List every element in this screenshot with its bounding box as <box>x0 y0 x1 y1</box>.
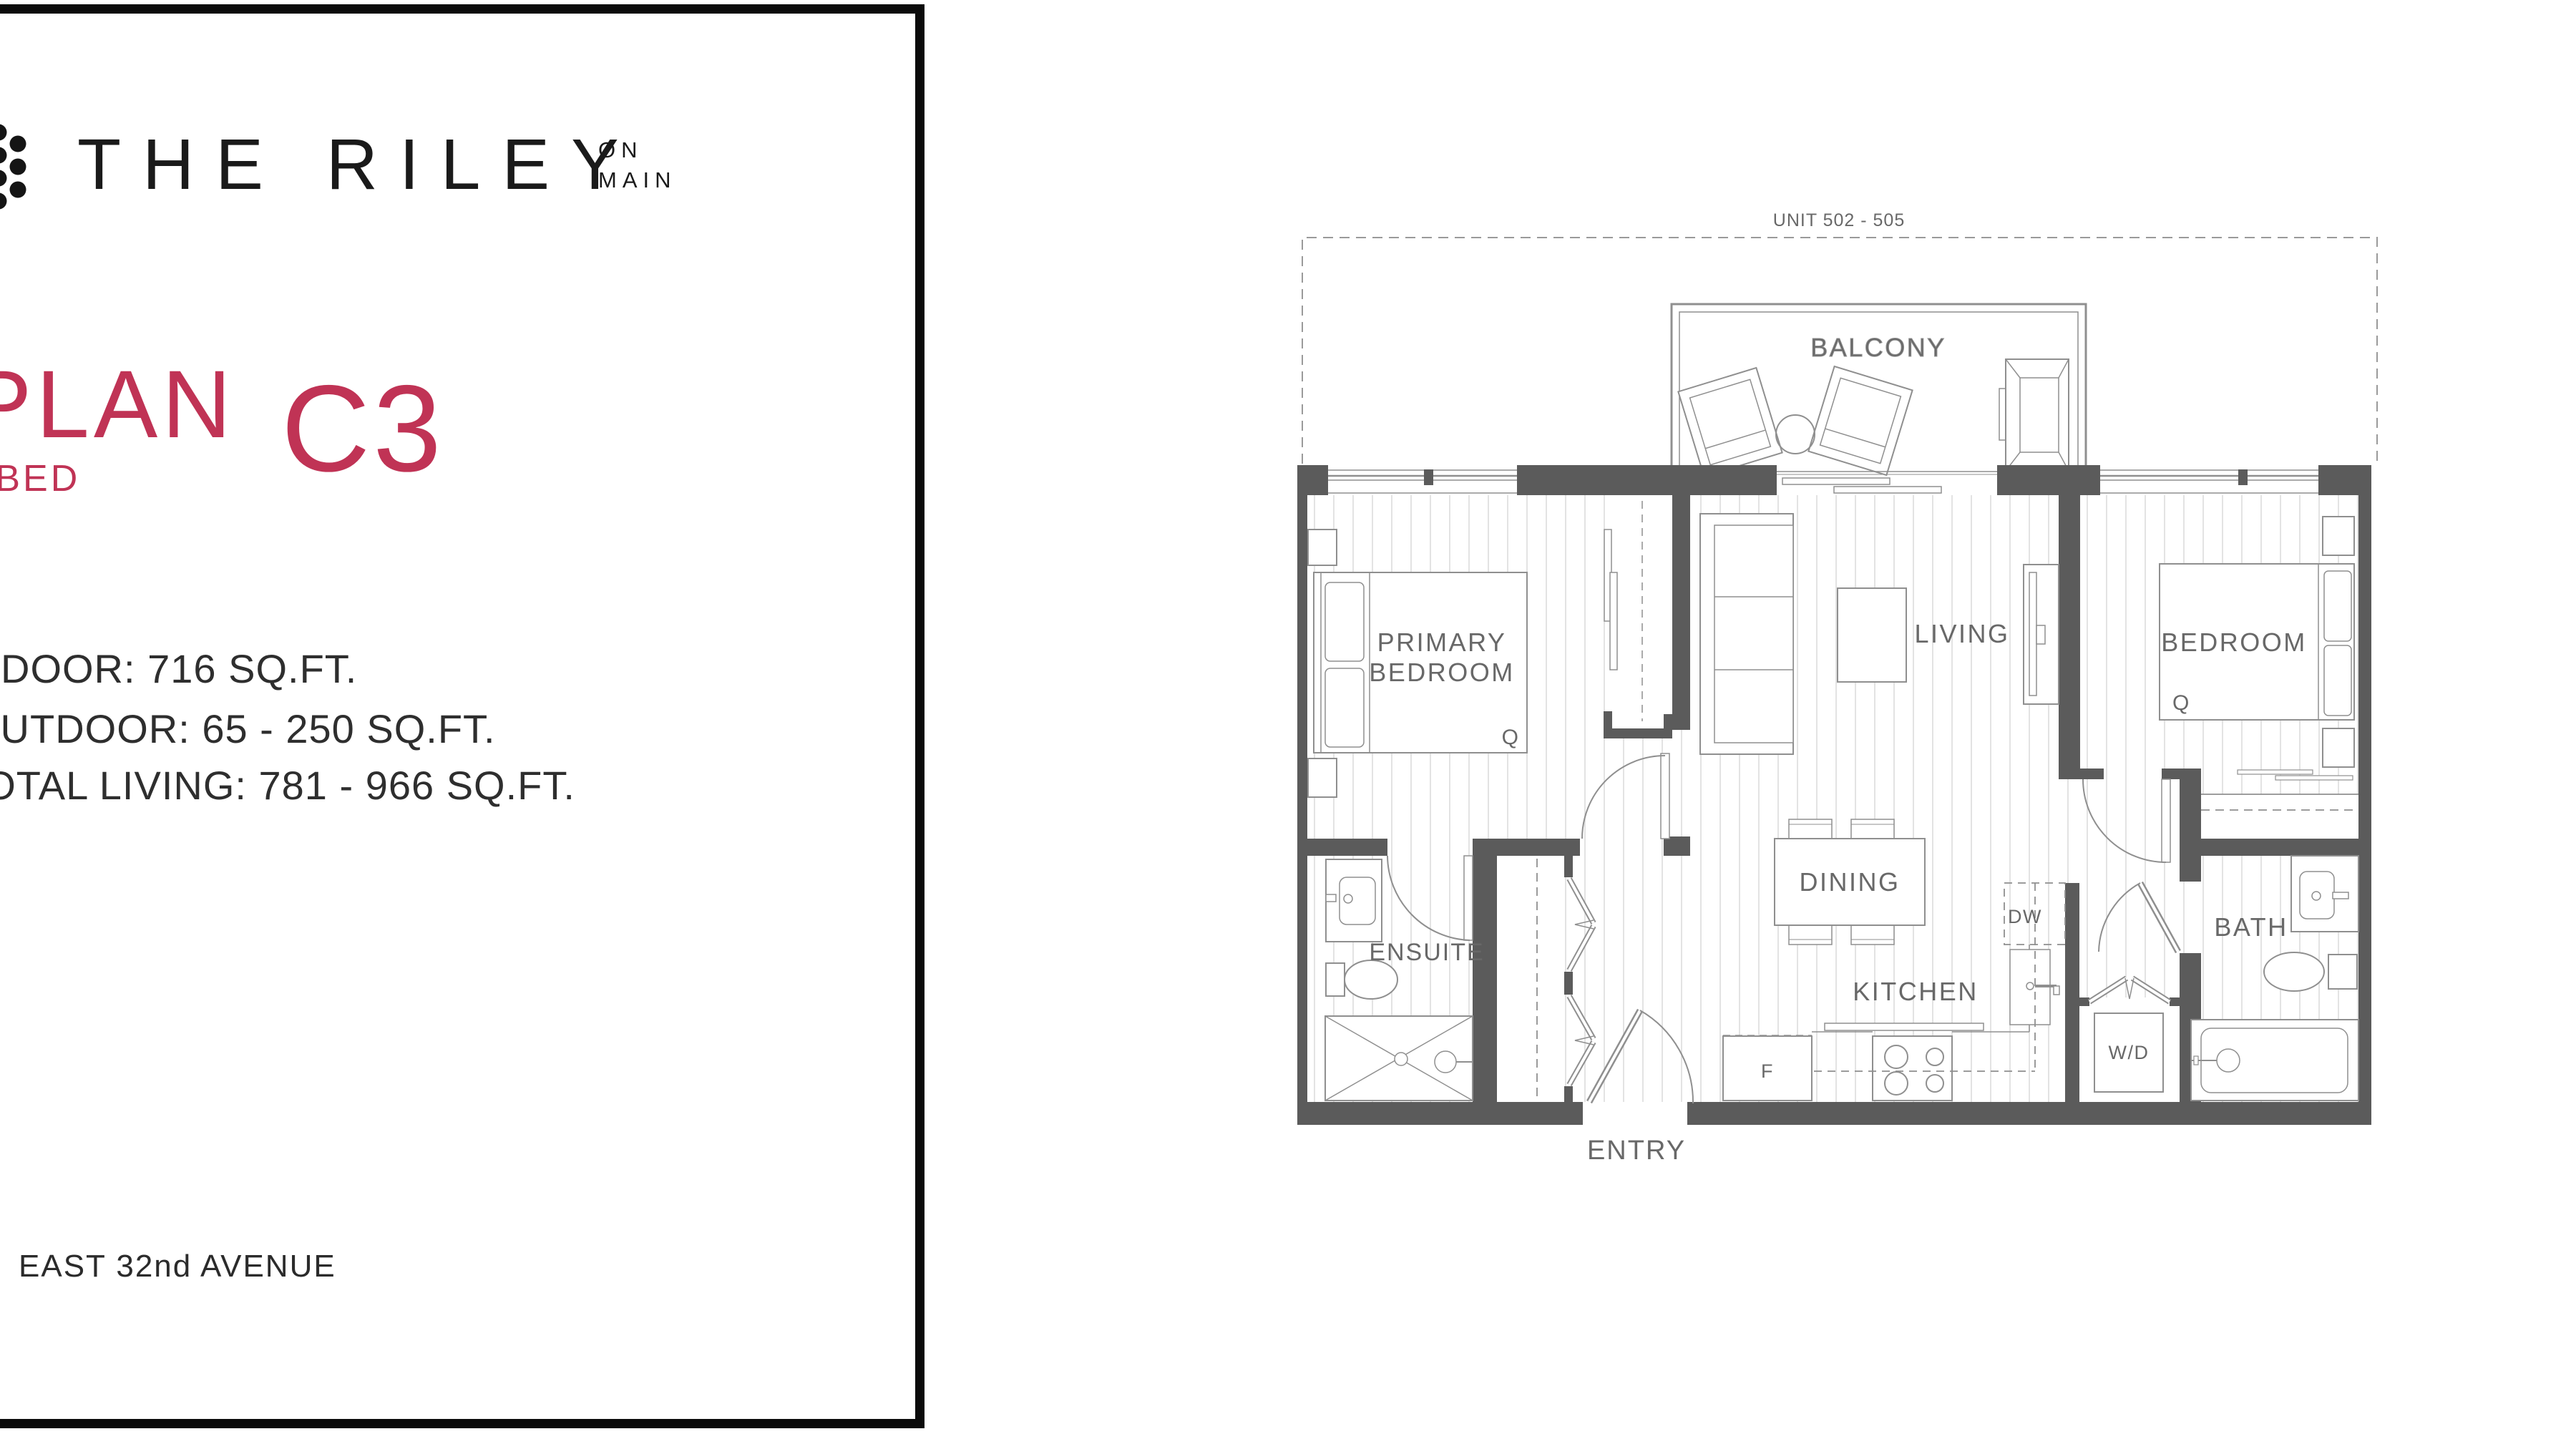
coffee-table <box>1838 588 1906 682</box>
primary-bedroom-label-1: PRIMARY <box>1377 628 1507 657</box>
brochure-page: THE RILEY ON MAIN PLAN C3 2 BED INDOOR: … <box>0 0 2576 1449</box>
dw-label: DW <box>2008 906 2042 927</box>
ensuite-toilet <box>1326 960 1397 999</box>
balcony-label: BALCONY <box>1810 333 1946 362</box>
bath-toilet <box>2264 952 2357 991</box>
sofa <box>1700 514 1793 754</box>
windows <box>1328 469 2318 493</box>
window-bedroom <box>2100 469 2318 493</box>
living-label: LIVING <box>1914 619 2009 648</box>
queen-label-primary: Q <box>1502 726 1518 749</box>
shelf <box>2275 776 2353 780</box>
stove <box>1873 1036 1952 1101</box>
nightstand <box>2323 728 2354 767</box>
queen-label-bedroom2: Q <box>2172 691 2189 715</box>
bath-label: BATH <box>2214 912 2288 942</box>
nightstand <box>1308 758 1337 797</box>
kitchen-label: KITCHEN <box>1853 977 1979 1006</box>
ensuite-label: ENSUITE <box>1369 939 1484 966</box>
primary-bedroom-label-2: BEDROOM <box>1369 658 1515 687</box>
shelf <box>2238 770 2313 774</box>
fridge-label: F <box>1761 1060 1774 1082</box>
bath-vanity <box>2291 856 2358 932</box>
tv-unit <box>2024 565 2059 704</box>
floor-plan: UNIT 502 - 505 <box>0 0 2576 1449</box>
wd-label: W/D <box>2109 1042 2150 1063</box>
nightstand <box>2323 517 2354 555</box>
ensuite-vanity <box>1326 859 1382 942</box>
nightstand <box>1308 530 1337 565</box>
shower <box>1325 1016 1473 1101</box>
balcony-chair-left <box>1678 368 1782 477</box>
bathtub <box>2191 1020 2358 1101</box>
balcony-sliding-door <box>1777 472 1997 493</box>
unit-label: UNIT 502 - 505 <box>1773 210 1905 230</box>
dining-label: DINING <box>1800 867 1901 897</box>
balcony-table <box>1776 415 1815 454</box>
entry-label: ENTRY <box>1587 1136 1686 1166</box>
balcony-chair-right <box>1808 366 1912 475</box>
bedroom2-label: BEDROOM <box>2161 628 2307 657</box>
balcony-lounge <box>1999 359 2069 471</box>
balcony: BALCONY <box>1672 304 2086 477</box>
window-primary <box>1328 469 1517 493</box>
